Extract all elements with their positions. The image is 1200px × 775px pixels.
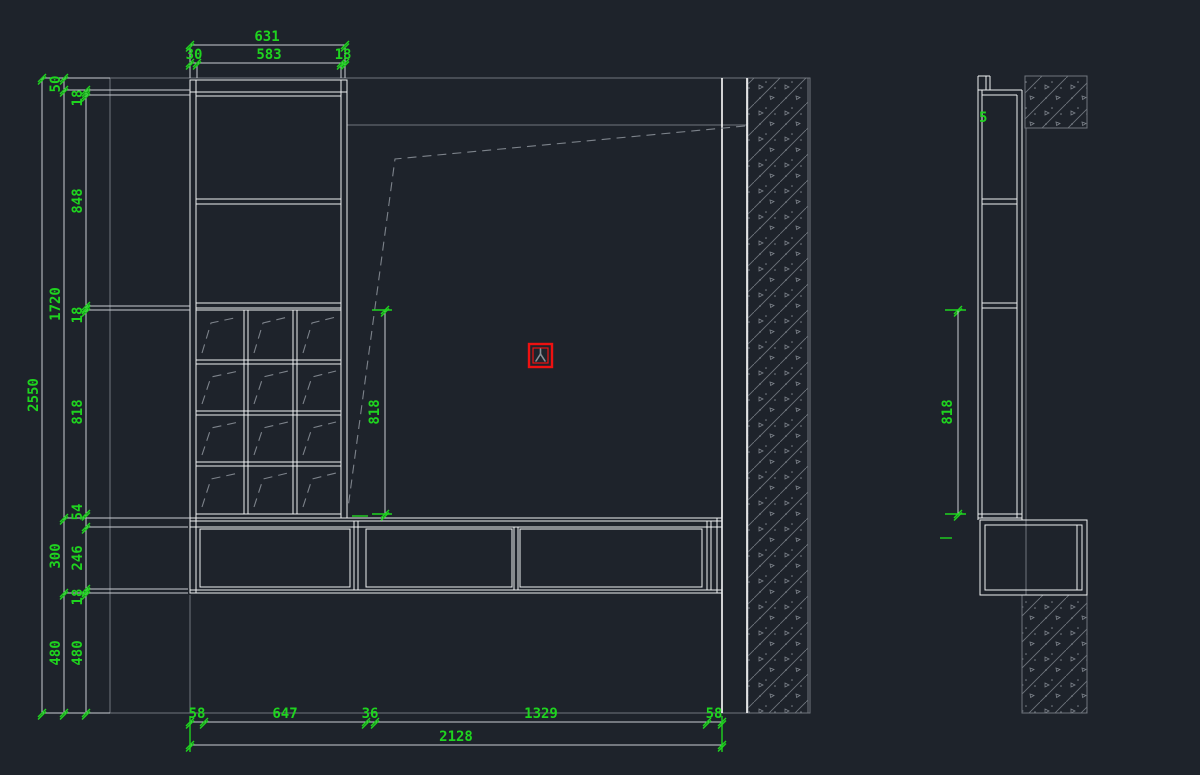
side-view-note[interactable]: 5	[979, 110, 987, 126]
dim-left-m-0[interactable]: 50	[48, 76, 64, 93]
dim-left-m-2[interactable]: 300	[48, 543, 64, 568]
tv-cabinet-door[interactable]	[200, 529, 350, 587]
dim-bottom-seg-0[interactable]: 58	[189, 706, 206, 722]
dim-left-i-3[interactable]: 818	[70, 399, 86, 424]
front-elevation[interactable]	[110, 78, 810, 713]
dim-top[interactable]: 631 30 583 18	[186, 29, 352, 78]
tall-cabinet[interactable]	[190, 80, 347, 518]
dim-side-vertical[interactable]: 818	[940, 310, 966, 538]
dim-left-i-5[interactable]: 246	[70, 545, 86, 570]
dim-bottom-seg-1[interactable]: 647	[272, 706, 297, 722]
cubby-door-marks	[202, 317, 336, 507]
dim-left-i-7[interactable]: 480	[70, 640, 86, 665]
room-outline[interactable]	[110, 78, 810, 713]
dimension-ticks	[38, 41, 962, 752]
dim-left-total[interactable]: 2550	[26, 378, 42, 412]
wall-section-hatch[interactable]	[748, 78, 808, 713]
tv-cabinet[interactable]	[190, 518, 722, 593]
wall-column[interactable]	[722, 78, 747, 713]
dim-middle-vertical[interactable]: 818	[352, 310, 392, 516]
side-wall-hatch-bottom[interactable]	[1022, 595, 1087, 713]
dim-middle-label[interactable]: 818	[367, 399, 383, 424]
side-tall-unit[interactable]	[978, 76, 1022, 520]
block-glyph	[536, 349, 545, 361]
tv-cabinet-door[interactable]	[520, 529, 702, 587]
dim-left-m-3[interactable]: 480	[48, 640, 64, 665]
dim-bottom-seg-3[interactable]: 1329	[524, 706, 558, 722]
dim-left-m-1[interactable]: 1720	[48, 287, 64, 321]
dim-left[interactable]: 2550 50 1720 300 480 18 848 18 818 54 24…	[26, 76, 190, 713]
dim-top-seg-1[interactable]: 583	[256, 47, 281, 63]
cad-model-space: 631 30 583 18 2550 50 1720 300 480 18	[0, 0, 1200, 775]
dim-bottom-seg-4[interactable]: 58	[706, 706, 723, 722]
dimensions[interactable]: 631 30 583 18 2550 50 1720 300 480 18	[26, 29, 962, 752]
dim-top-total[interactable]: 631	[254, 29, 279, 45]
cubby-grid[interactable]	[196, 310, 341, 514]
drawing-canvas: 631 30 583 18 2550 50 1720 300 480 18	[0, 0, 1200, 775]
side-view[interactable]: 818 5	[940, 76, 1087, 713]
projection-dashed-line[interactable]	[348, 126, 745, 508]
dim-side-label[interactable]: 818	[940, 399, 956, 424]
dim-left-i-1[interactable]: 848	[70, 188, 86, 213]
side-wall-hatch-top[interactable]	[1025, 76, 1087, 128]
side-tv-cabinet[interactable]	[980, 520, 1087, 595]
dim-bottom-total[interactable]: 2128	[439, 729, 473, 745]
tv-cabinet-door[interactable]	[366, 529, 512, 587]
dim-bottom-seg-2[interactable]: 36	[362, 706, 379, 722]
dim-left-i-4[interactable]: 54	[70, 504, 86, 521]
selected-block[interactable]	[529, 344, 552, 367]
